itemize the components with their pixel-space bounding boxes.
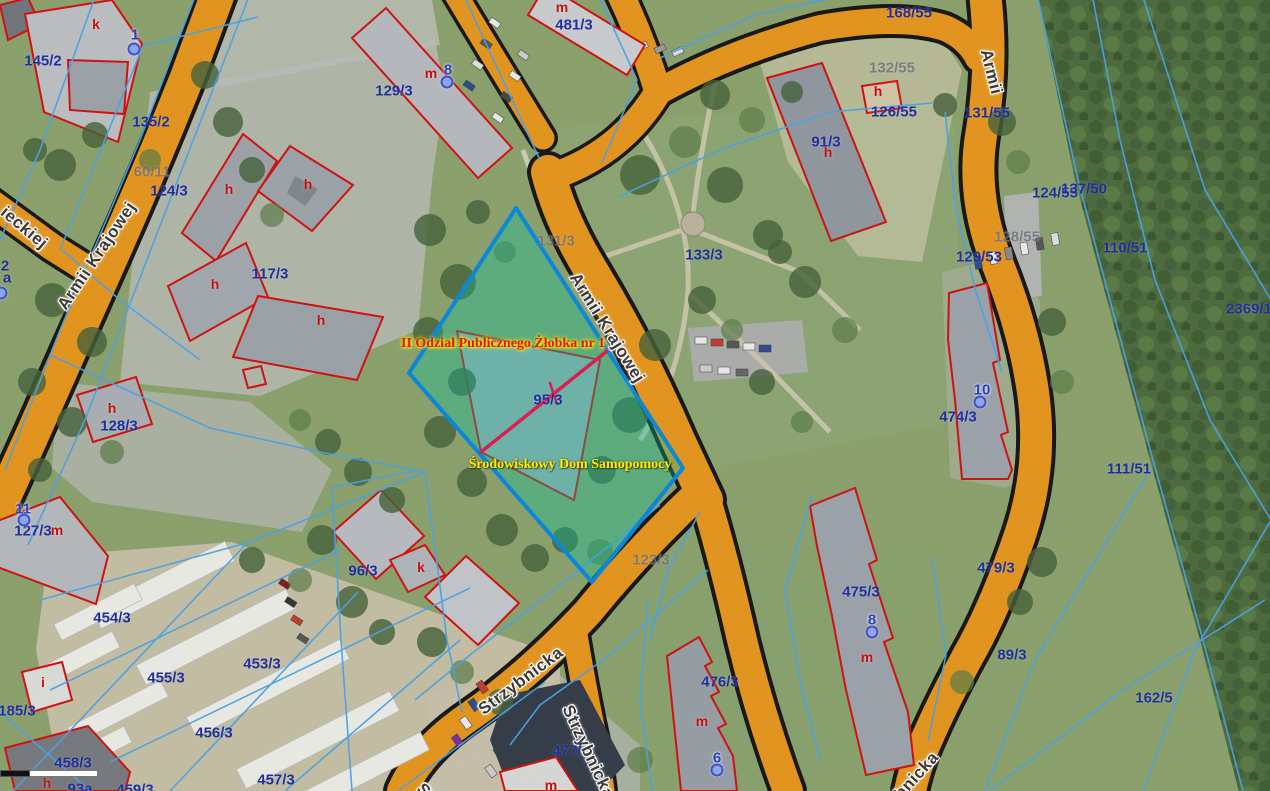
scale-bar-segment-dark xyxy=(0,770,30,777)
address-point-dot[interactable] xyxy=(441,76,454,89)
parcel-number-label: 124/3 xyxy=(150,183,188,200)
parcel-number-label: 475/3 xyxy=(842,584,880,601)
address-point-dot[interactable] xyxy=(974,396,987,409)
parcel-number-label: 2369/1 xyxy=(1226,301,1270,318)
parcel-number-label: 162/5 xyxy=(1135,690,1173,707)
grain-overlay xyxy=(0,0,1270,791)
parcel-number-label: 137/50 xyxy=(1061,181,1107,198)
parcel-number-label: 145/2 xyxy=(24,53,62,70)
parcel-number-label: 135/2 xyxy=(132,114,170,131)
building-type-letter: m xyxy=(51,522,63,538)
parcel-number-label: 117/3 xyxy=(252,266,289,283)
parcel-number-label: 459/3 xyxy=(116,782,154,791)
building-type-letter: i xyxy=(41,674,45,690)
parcel-number-label: 454/3 xyxy=(93,610,131,627)
parcel-number-label: 455/3 xyxy=(147,670,185,687)
parcel-number-label: 131/3 xyxy=(537,233,575,250)
parcel-number-label: 128/3 xyxy=(100,418,138,435)
parcel-number-label: 93a xyxy=(67,781,92,791)
parcel-number-label: 457/3 xyxy=(257,772,295,789)
building-type-letter: h xyxy=(824,144,833,160)
building-type-letter: m xyxy=(425,65,437,81)
building-type-letter: h xyxy=(317,312,326,328)
address-point-dot[interactable] xyxy=(866,626,879,639)
building-type-letter: h xyxy=(211,276,220,292)
parcel-number-label: 185/3 xyxy=(0,703,36,720)
parcel-number-label: 111/51 xyxy=(1107,461,1151,478)
parcel-number-label: 456/3 xyxy=(195,725,233,742)
aerial-imagery-layer[interactable] xyxy=(0,0,1270,791)
parcel-number-label: 133/3 xyxy=(685,247,723,264)
parcel-number-label: 95/3 xyxy=(533,392,562,409)
parcel-number-label: 126/55 xyxy=(871,104,917,121)
parcel-number-label: 131/55 xyxy=(964,105,1010,122)
building-type-letter: h xyxy=(108,400,117,416)
parcel-number-label: 481/3 xyxy=(555,17,593,34)
parcel-number-label: 129/53 xyxy=(956,249,1002,266)
parcel-number-label: 60/11 xyxy=(134,164,171,181)
parcel-number-label: 476/3 xyxy=(701,674,739,691)
parcel-number-label: 128/55 xyxy=(994,229,1040,246)
scale-bar xyxy=(0,770,98,777)
parcel-number-label: 132/55 xyxy=(869,60,915,77)
parcel-number-label: 110/51 xyxy=(1102,240,1147,257)
address-point-dot[interactable] xyxy=(18,514,31,527)
parcel-number-label: 96/3 xyxy=(348,563,377,580)
building-type-letter: h xyxy=(225,181,234,197)
building-type-letter: h xyxy=(874,83,883,99)
poi-label: II Odział Publicznego Żłobka nr 1 xyxy=(401,336,605,352)
parcel-number-label: 123/3 xyxy=(632,552,670,569)
address-point-dot[interactable] xyxy=(128,43,141,56)
building-type-letter: k xyxy=(417,559,425,575)
parcel-number-label: 479/3 xyxy=(977,560,1015,577)
building-type-letter: h xyxy=(304,176,313,192)
building-type-letter: m xyxy=(556,0,568,15)
parcel-number-label: 168/55 xyxy=(886,5,932,22)
parcel-number-label: 458/3 xyxy=(54,755,92,772)
building-type-letter: k xyxy=(92,16,100,32)
parcel-number-label: 474/3 xyxy=(939,409,977,426)
parcel-number-label: 89/3 xyxy=(997,647,1026,664)
building-type-letter: m xyxy=(696,713,708,729)
address-point-dot[interactable] xyxy=(711,764,724,777)
address-number-label: 1 xyxy=(131,27,139,44)
building-type-letter: m xyxy=(861,649,873,665)
parcel-number-label: 477/ xyxy=(552,743,581,760)
parcel-number-label: 453/3 xyxy=(243,656,281,673)
parcel-number-label: 129/3 xyxy=(375,83,413,100)
map-canvas[interactable]: Armii KrajowejieckiejArmii KrajowejArmii… xyxy=(0,0,1270,791)
building-type-letter: h xyxy=(43,775,52,791)
scale-bar-segment-light xyxy=(30,770,98,777)
poi-label: Środowiskowy Dom Samopomocy xyxy=(469,457,672,473)
parcel-number-label: a xyxy=(3,270,11,287)
building-type-letter: m xyxy=(545,777,557,791)
